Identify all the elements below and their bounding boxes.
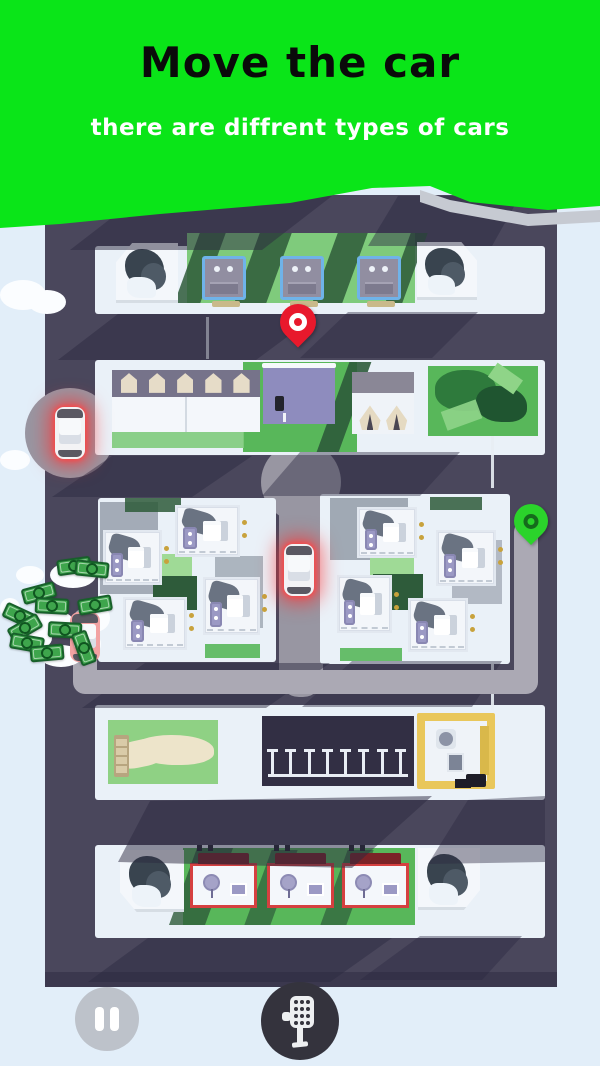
pin-hole (524, 514, 539, 529)
car-windshield (288, 556, 310, 581)
pause-icon (95, 1007, 104, 1031)
red-car-middle[interactable] (284, 544, 314, 596)
start-pin (514, 504, 548, 550)
car-hood (57, 409, 82, 418)
game-title: Move the car (0, 38, 600, 87)
destination-pin (280, 304, 316, 354)
gear-shifter-button[interactable] (261, 982, 339, 1060)
money-bill (74, 559, 109, 578)
game-screen: Move the car there are diffrent types of… (0, 0, 600, 1066)
money-bill (35, 597, 70, 615)
pause-button[interactable] (75, 987, 139, 1051)
pin-hole (289, 313, 307, 331)
cloud (0, 450, 30, 470)
game-subtitle: there are diffrent types of cars (0, 115, 600, 141)
car-hood (286, 546, 311, 555)
cloud (16, 566, 44, 584)
gear-shifter-icon (290, 996, 314, 1028)
money-bill (29, 644, 64, 663)
cloud (28, 290, 66, 314)
car-trunk (287, 587, 311, 594)
pause-icon (110, 1007, 119, 1031)
gear-shifter-knob (282, 1012, 291, 1021)
red-car-left[interactable] (55, 407, 85, 459)
gear-shifter-base (292, 1041, 308, 1048)
car-trunk (58, 450, 82, 457)
car-windshield (59, 419, 81, 444)
